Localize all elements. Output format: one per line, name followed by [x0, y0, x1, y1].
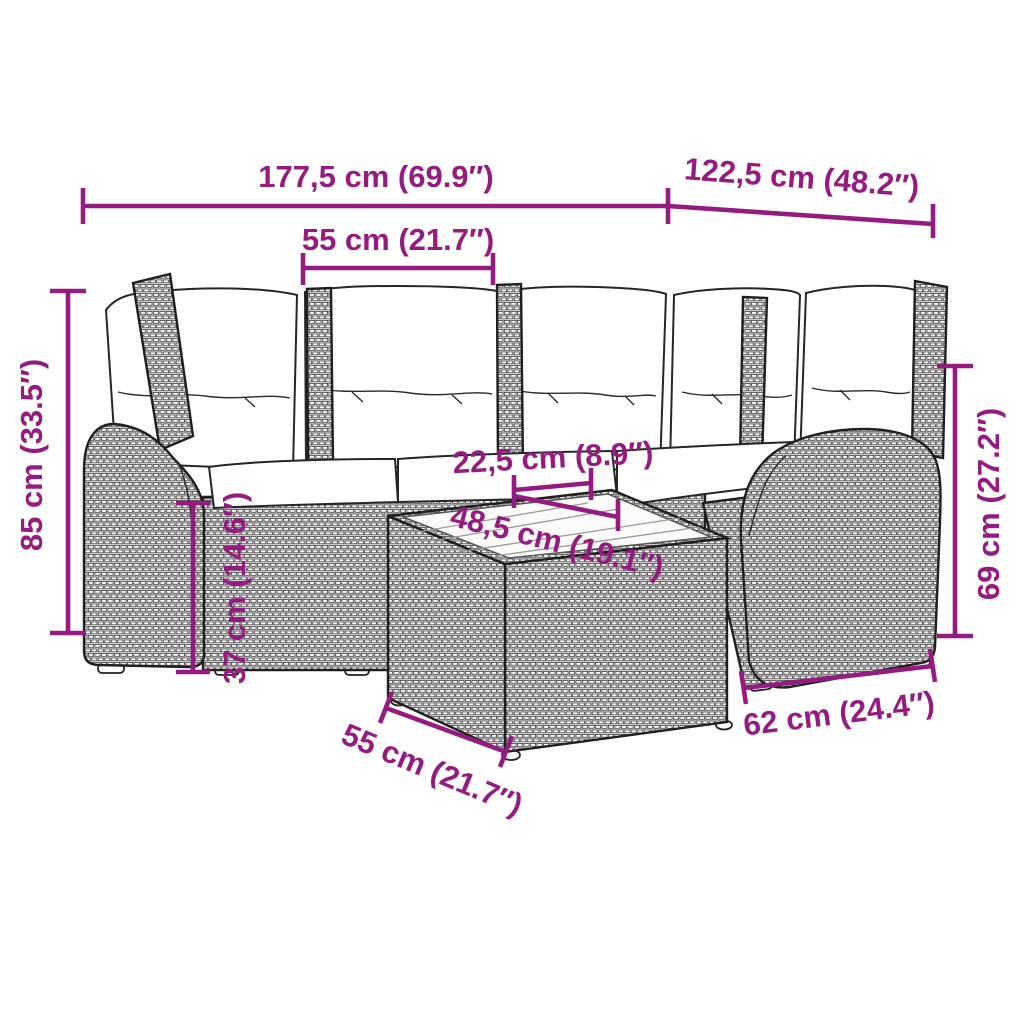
dimension-label-armrest-height: 69 cm (27.2″) — [971, 408, 1006, 600]
back-cushion-2 — [305, 286, 499, 468]
dimension-right-depth: 122,5 cm (48.2″) — [668, 151, 933, 238]
right-armrest — [741, 429, 941, 687]
dimension-label-seat-width: 55 cm (21.7″) — [302, 222, 494, 257]
dimension-seat-width: 55 cm (21.7″) — [302, 222, 494, 285]
frame-post-4 — [740, 297, 767, 462]
dimension-label-right-depth: 122,5 cm (48.2″) — [683, 151, 920, 204]
dimension-label-overall-height: 85 cm (33.5″) — [14, 359, 49, 551]
dimension-label-total-width: 177,5 cm (69.9″) — [258, 159, 493, 194]
dimension-overall-height: 85 cm (33.5″) — [14, 291, 86, 633]
dimension-total-width: 177,5 cm (69.9″) — [83, 159, 668, 224]
frame-post-2 — [307, 288, 333, 465]
dimension-label-seat-height: 37 cm (14.6″) — [217, 492, 252, 684]
frame-post-3 — [497, 284, 523, 468]
dimension-armrest-height: 69 cm (27.2″) — [937, 366, 1006, 636]
product-dimension-diagram: 177,5 cm (69.9″) 122,5 cm (48.2″) 55 cm … — [0, 0, 1024, 1024]
frame-post-right — [912, 281, 947, 458]
diagram-canvas: 177,5 cm (69.9″) 122,5 cm (48.2″) 55 cm … — [0, 0, 1024, 1024]
back-cushion-4 — [670, 288, 800, 466]
dimension-label-right-section-width: 62 cm (24.4″) — [741, 684, 936, 742]
